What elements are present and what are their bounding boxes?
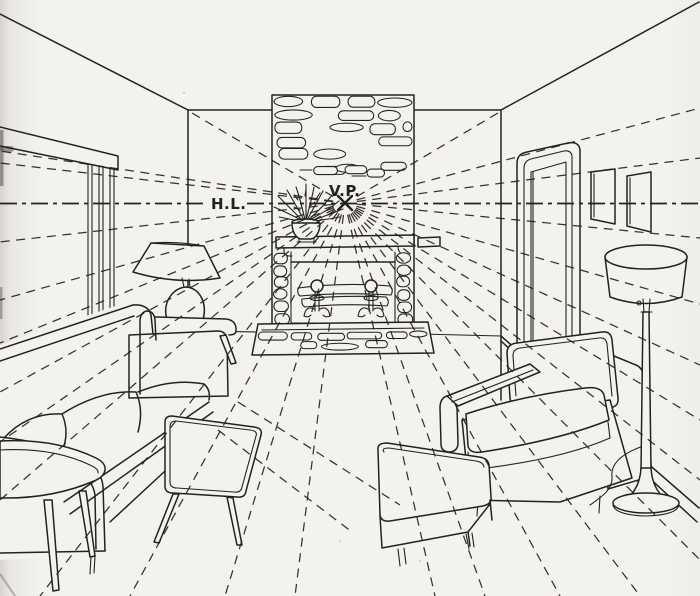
ceiling-lines: [0, 2, 699, 110]
perspective-drawing-page: H.L. V.P.: [0, 0, 700, 596]
fireplace: [252, 95, 440, 355]
hl-label: H.L.: [211, 195, 247, 213]
coffee-bench: [154, 416, 261, 545]
lamp-pole: [641, 312, 651, 470]
bench-leg: [154, 494, 179, 543]
ottoman: [378, 443, 492, 566]
table-lamp-shade: [133, 243, 220, 280]
perspective-drawing-canvas: H.L. V.P.: [0, 0, 700, 596]
window-wall: [0, 127, 118, 326]
picture-frames: [591, 169, 651, 232]
lamp-base: [613, 493, 679, 513]
bench-leg: [227, 497, 242, 545]
picture-frame-left: [591, 169, 615, 224]
vp-label: V.P.: [329, 182, 360, 200]
window-header: [0, 127, 118, 170]
hearth: [252, 322, 434, 355]
picture-frame-right: [627, 172, 651, 232]
